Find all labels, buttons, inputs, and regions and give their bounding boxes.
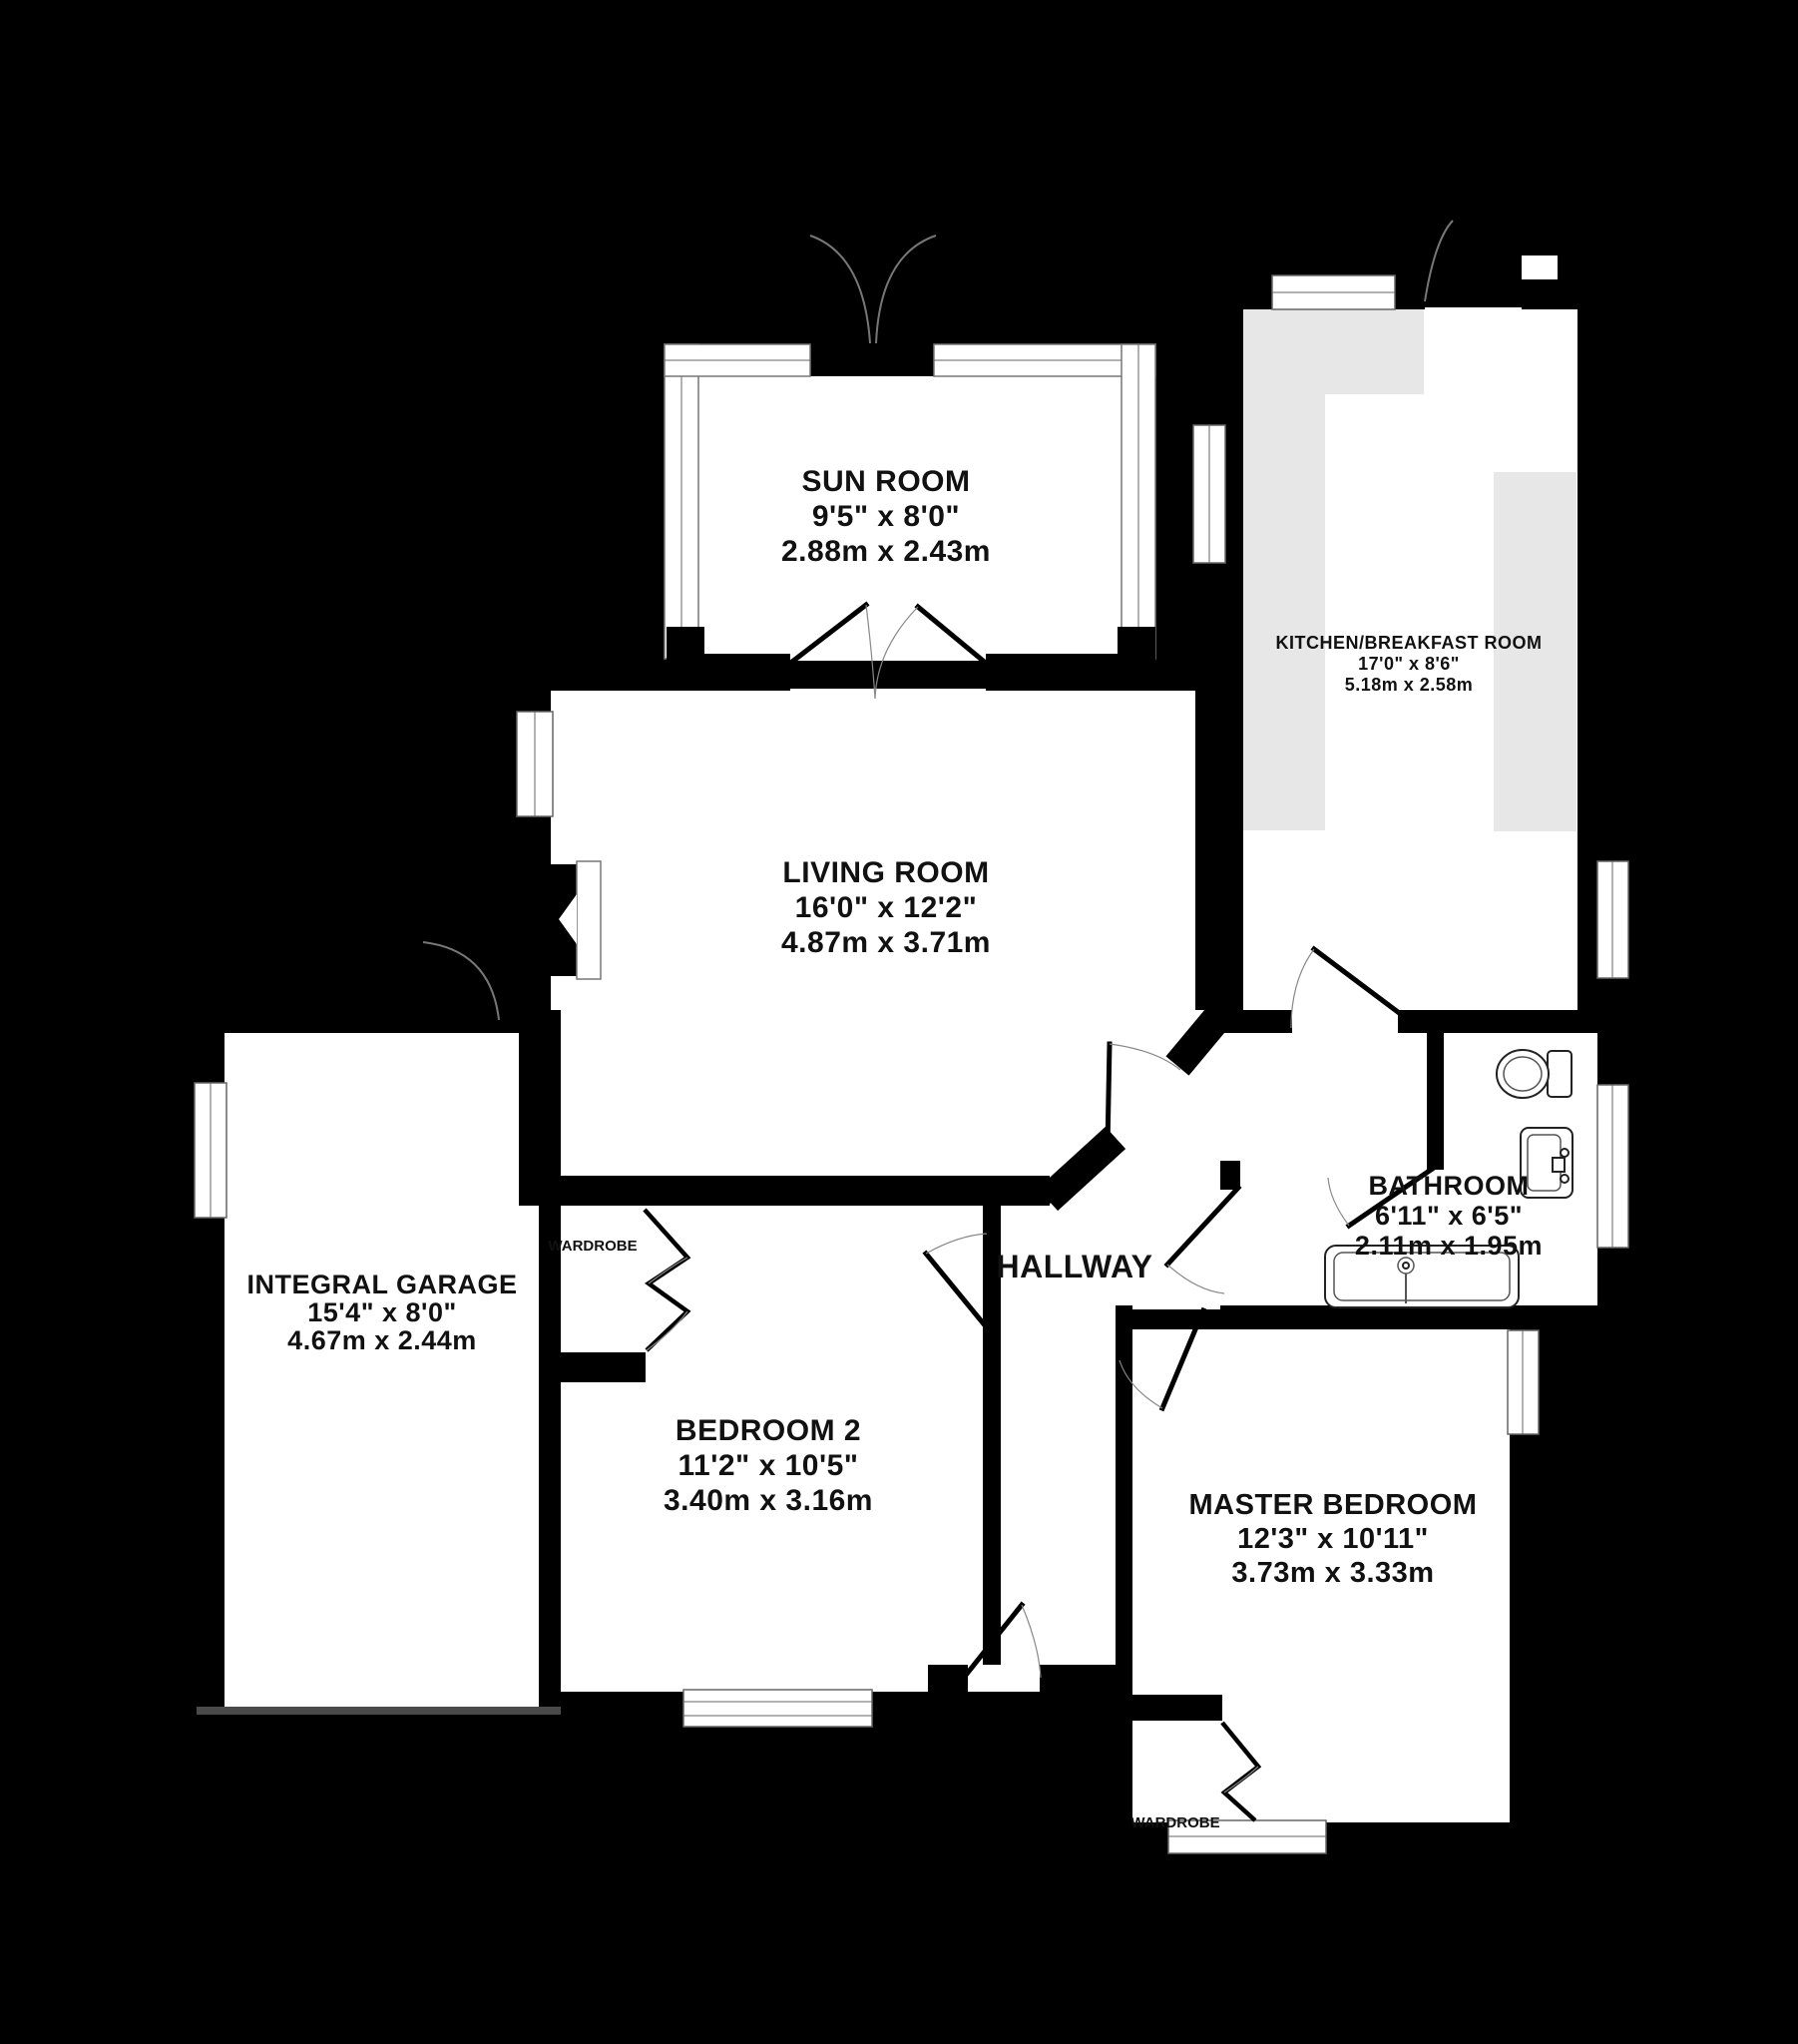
- garage-window: [195, 1083, 226, 1218]
- garage-floor: [225, 1033, 539, 1709]
- hallway-name: HALLWAY: [997, 1249, 1153, 1284]
- bathroom-label: BATHROOM 6'11" x 6'5" 2.11m x 1.95m: [1355, 1171, 1543, 1261]
- sun-room-garden-doors: [810, 236, 936, 343]
- garage-imperial: 15'4" x 8'0": [307, 1297, 457, 1327]
- kitchen-east-window: [1597, 861, 1628, 978]
- master-east-window: [1508, 1330, 1539, 1434]
- sun-room-name: SUN ROOM: [802, 465, 971, 498]
- garage-metric: 4.67m x 2.44m: [287, 1325, 477, 1355]
- floor-plan: SUN ROOM 9'5" x 8'0" 2.88m x 2.43m KITCH…: [0, 0, 1798, 2044]
- sun-room-corner-left: [667, 627, 704, 661]
- bathroom-metric: 2.11m x 1.95m: [1355, 1231, 1543, 1261]
- bedroom-2-label: BEDROOM 2 11'2" x 10'5" 3.40m x 3.16m: [664, 1414, 873, 1517]
- bedroom-2-window: [683, 1690, 872, 1727]
- master-bedroom-imperial: 12'3" x 10'11": [1237, 1523, 1429, 1555]
- living-room-label: LIVING ROOM 16'0" x 12'2" 4.87m x 3.71m: [781, 856, 991, 959]
- sun-room-metric: 2.88m x 2.43m: [781, 535, 991, 568]
- master-wardrobe-text: WARDROBE: [1130, 1814, 1219, 1831]
- master-bedroom-name: MASTER BEDROOM: [1189, 1489, 1478, 1521]
- kitchen-back-door-arc: [1425, 221, 1453, 301]
- kitchen-step: [1522, 255, 1558, 281]
- counter-left: [1243, 307, 1325, 830]
- floor-plan-page: SUN ROOM 9'5" x 8'0" 2.88m x 2.43m KITCH…: [0, 0, 1798, 2044]
- garage-name: INTEGRAL GARAGE: [246, 1270, 517, 1299]
- bedroom-2-imperial: 11'2" x 10'5": [677, 1449, 858, 1482]
- sun-room-corner-right: [1118, 627, 1155, 661]
- kitchen-imperial: 17'0" x 8'6": [1358, 654, 1460, 674]
- living-room-metric: 4.87m x 3.71m: [781, 926, 991, 959]
- bedroom-2-wardrobe-text: WARDROBE: [548, 1238, 637, 1255]
- bedroom-2-metric: 3.40m x 3.16m: [664, 1484, 873, 1517]
- master-wardrobe-label: WARDROBE: [1130, 1814, 1219, 1831]
- kitchen-north-window: [1272, 275, 1395, 309]
- master-bedroom-metric: 3.73m x 3.33m: [1231, 1557, 1434, 1589]
- living-room-window: [517, 712, 553, 816]
- bathroom-window: [1597, 1085, 1628, 1248]
- kitchen-metric: 5.18m x 2.58m: [1345, 675, 1474, 695]
- living-room-name: LIVING ROOM: [782, 856, 989, 889]
- living-room-imperial: 16'0" x 12'2": [795, 891, 978, 924]
- bathroom-imperial: 6'11" x 6'5": [1375, 1201, 1523, 1231]
- bedroom-2-wardrobe-label: WARDROBE: [548, 1238, 637, 1255]
- sun-room-label: SUN ROOM 9'5" x 8'0" 2.88m x 2.43m: [781, 465, 991, 568]
- fireplace: [551, 861, 601, 979]
- kitchen-name: KITCHEN/BREAKFAST ROOM: [1276, 633, 1543, 653]
- rear-door-gap: [966, 1665, 1040, 1692]
- kitchen-west-window: [1193, 425, 1225, 563]
- toilet-icon: [1497, 1050, 1572, 1098]
- hallway-label: HALLWAY: [997, 1249, 1153, 1284]
- sun-room-imperial: 9'5" x 8'0": [812, 500, 960, 533]
- garage-door-arc: [423, 942, 499, 1020]
- bathroom-name: BATHROOM: [1369, 1171, 1530, 1201]
- garage-vehicle-door: [197, 1707, 561, 1715]
- bedroom-2-name: BEDROOM 2: [675, 1414, 861, 1447]
